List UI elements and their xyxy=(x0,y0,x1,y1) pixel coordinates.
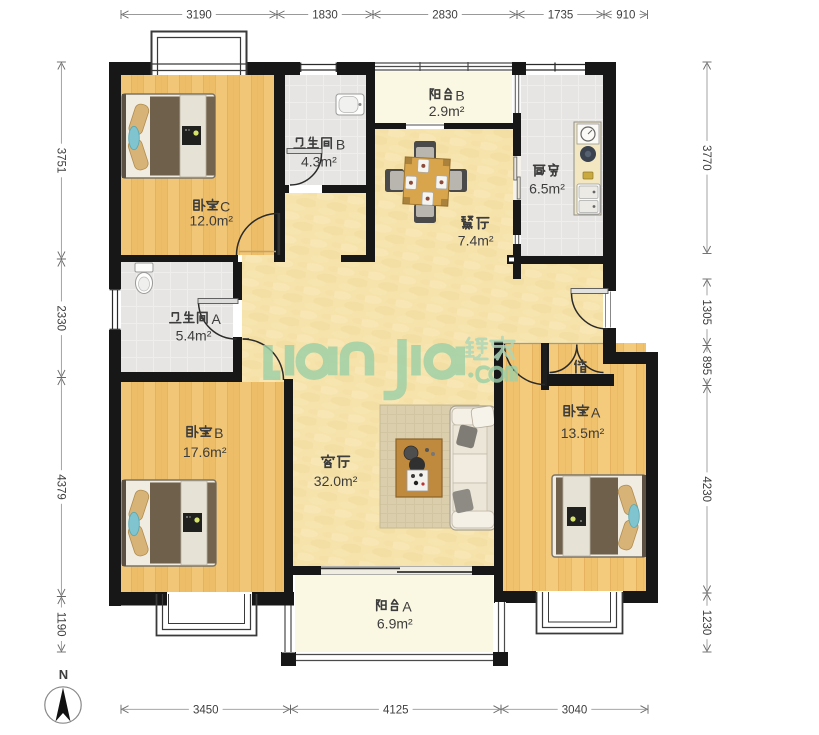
svg-text:12.0m²: 12.0m² xyxy=(190,213,234,229)
svg-text:1190: 1190 xyxy=(54,612,66,637)
svg-text:895: 895 xyxy=(700,356,712,375)
svg-text:A: A xyxy=(212,311,222,327)
svg-text:17.6m²: 17.6m² xyxy=(183,444,227,460)
svg-text:2830: 2830 xyxy=(432,10,458,22)
svg-text:1230: 1230 xyxy=(700,610,712,636)
svg-text:7.4m²: 7.4m² xyxy=(458,233,494,249)
svg-text:2330: 2330 xyxy=(54,305,66,331)
svg-text:910: 910 xyxy=(616,10,635,22)
svg-text:4125: 4125 xyxy=(383,704,409,716)
svg-text:3450: 3450 xyxy=(193,704,219,716)
svg-text:B: B xyxy=(455,88,464,104)
svg-text:1830: 1830 xyxy=(312,10,338,22)
svg-text:4.3m²: 4.3m² xyxy=(301,153,337,169)
svg-text:3751: 3751 xyxy=(54,148,66,174)
svg-text:6.9m²: 6.9m² xyxy=(377,616,413,632)
svg-text:4379: 4379 xyxy=(54,474,66,500)
svg-text:4230: 4230 xyxy=(700,476,712,502)
svg-text:2.9m²: 2.9m² xyxy=(429,103,465,119)
svg-text:B: B xyxy=(214,425,223,441)
svg-text:B: B xyxy=(336,137,345,153)
svg-text:13.5m²: 13.5m² xyxy=(561,425,605,441)
svg-text:5.4m²: 5.4m² xyxy=(176,328,212,344)
svg-text:32.0m²: 32.0m² xyxy=(314,473,358,489)
svg-text:1735: 1735 xyxy=(548,10,574,22)
svg-text:A: A xyxy=(591,405,601,421)
svg-text:3770: 3770 xyxy=(700,145,712,171)
svg-text:6.5m²: 6.5m² xyxy=(529,181,565,197)
svg-text:3190: 3190 xyxy=(186,10,212,22)
svg-text:1305: 1305 xyxy=(700,299,712,325)
svg-text:N: N xyxy=(59,667,68,682)
svg-text:A: A xyxy=(402,598,412,614)
svg-text:3040: 3040 xyxy=(562,704,588,716)
